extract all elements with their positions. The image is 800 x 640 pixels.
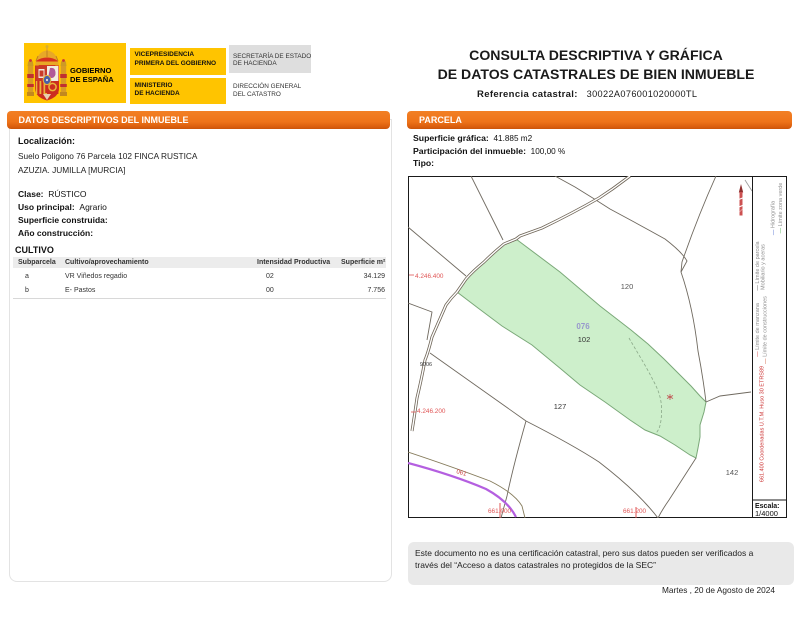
svg-text:127: 127 [554,402,567,411]
svg-text:— Límite zona verde: — Límite zona verde [778,183,784,234]
svg-text:— Límite de construcciones: — Límite de construcciones [763,296,769,364]
svg-text:— Límite de manzana: — Límite de manzana [755,302,761,357]
svg-text:4.246.200: 4.246.200 [417,408,446,415]
svg-text:9006: 9006 [420,362,432,368]
svg-text:Mobiliario y aceras: Mobiliario y aceras [761,244,767,290]
svg-text:102: 102 [578,335,591,344]
svg-text:1/4000: 1/4000 [755,509,778,518]
svg-text:076: 076 [576,322,590,331]
svg-text:661.200: 661.200 [623,508,647,515]
svg-text:4.246.400: 4.246.400 [415,273,444,280]
svg-text:661.400 Coordenadas U.T.M. Hus: 661.400 Coordenadas U.T.M. Huso 30 ETRS8… [760,366,766,482]
svg-text:— Hidrografía: — Hidrografía [771,200,777,235]
svg-text:142: 142 [726,468,739,477]
svg-text:120: 120 [621,282,634,291]
